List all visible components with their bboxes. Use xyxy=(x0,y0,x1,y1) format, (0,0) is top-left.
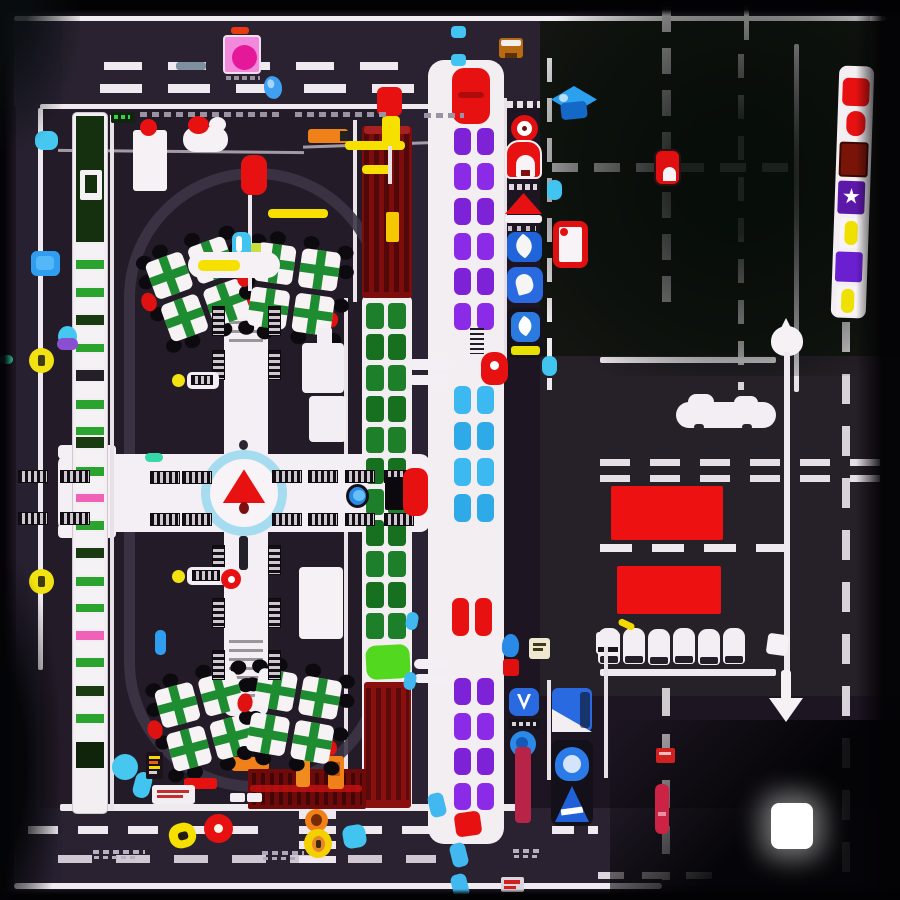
layer-bright xyxy=(0,0,900,900)
pill-mark xyxy=(658,812,666,816)
red-pill-marker xyxy=(655,784,669,834)
city-map-canvas xyxy=(0,0,900,900)
road-arrow-stem xyxy=(781,670,791,700)
tag-mark xyxy=(659,752,671,755)
glowing-square[interactable] xyxy=(771,803,813,849)
road-arrow-head xyxy=(769,698,803,722)
red-tag-marker xyxy=(656,748,675,763)
